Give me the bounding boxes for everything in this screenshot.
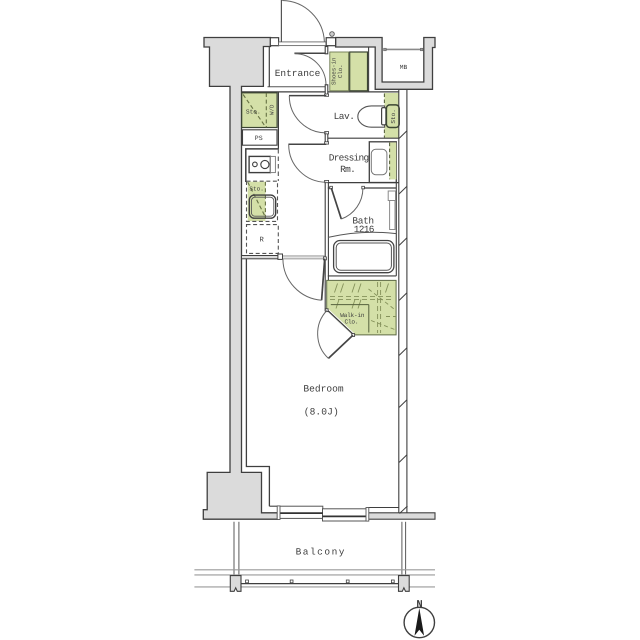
svg-text:Clo.: Clo. [337, 64, 344, 78]
svg-text:Entrance: Entrance [275, 68, 321, 79]
svg-text:Balcony: Balcony [296, 546, 346, 557]
svg-text:Bedroom: Bedroom [303, 384, 344, 395]
svg-text:(8.0J): (8.0J) [304, 407, 339, 418]
svg-text:Lav.: Lav. [334, 111, 355, 122]
svg-text:W/D: W/D [269, 104, 276, 115]
svg-text:PS: PS [255, 135, 263, 142]
svg-text:Sto.: Sto. [246, 108, 261, 115]
svg-text:N: N [416, 599, 422, 611]
svg-text:R: R [260, 236, 265, 244]
svg-text:Clo.: Clo. [344, 319, 358, 326]
svg-text:Dressing: Dressing [329, 152, 369, 163]
svg-text:1216: 1216 [354, 224, 375, 235]
svg-text:Sto.: Sto. [249, 185, 263, 192]
svg-text:Sto.: Sto. [390, 109, 397, 123]
svg-text:Rm.: Rm. [340, 164, 355, 175]
svg-text:MB: MB [400, 64, 408, 71]
